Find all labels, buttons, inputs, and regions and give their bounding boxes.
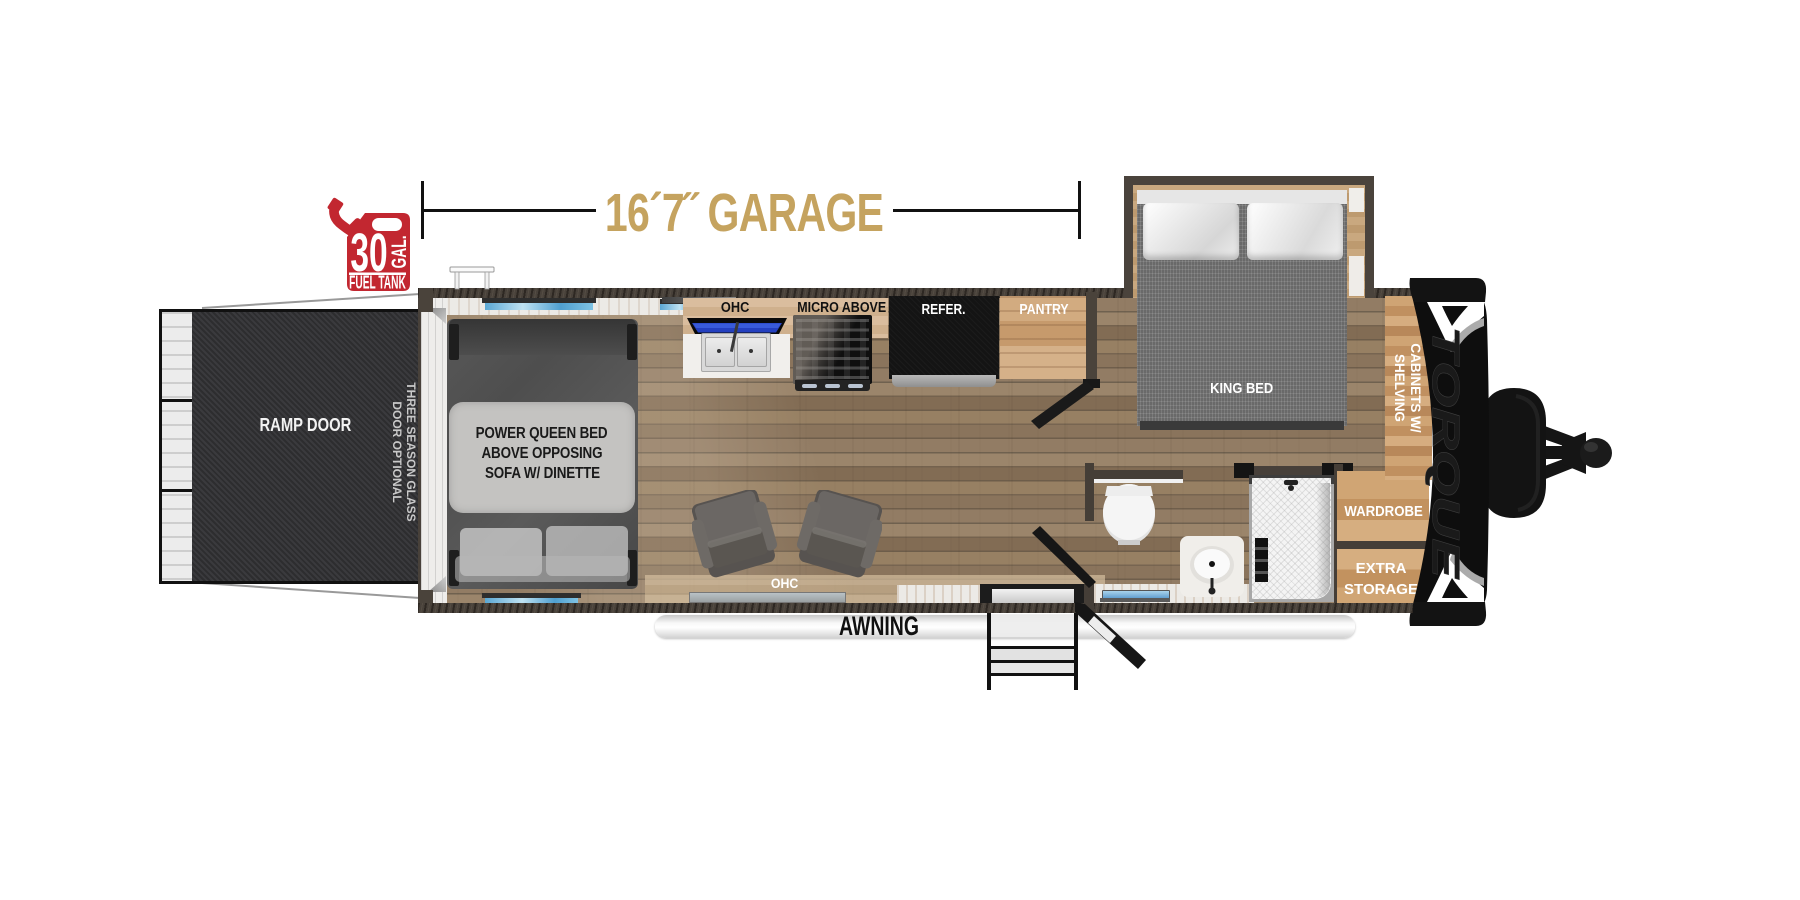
svg-text:GAL.: GAL. [387,235,411,268]
svg-text:TORQUE: TORQUE [1424,326,1466,581]
